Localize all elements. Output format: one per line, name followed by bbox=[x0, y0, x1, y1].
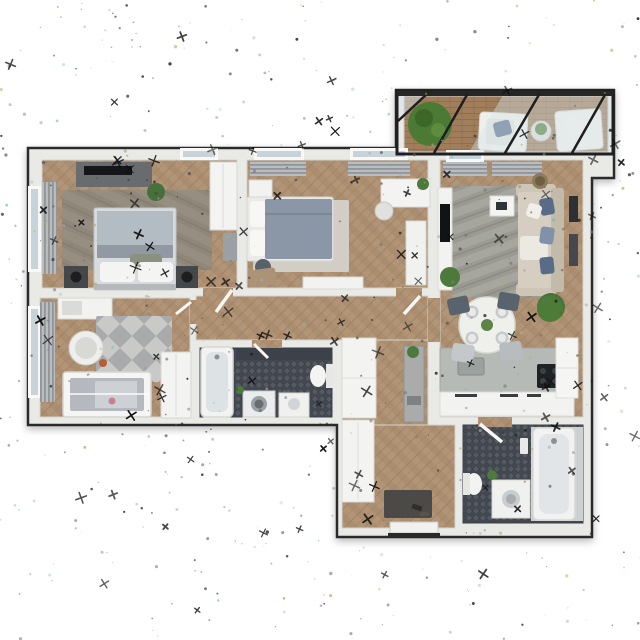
noise-dot bbox=[2, 147, 4, 149]
noise-dot bbox=[332, 487, 335, 490]
noise-dot bbox=[392, 279, 394, 281]
noise-dot bbox=[300, 515, 302, 517]
noise-dot bbox=[508, 26, 510, 28]
noise-dot bbox=[524, 197, 526, 199]
noise-dot bbox=[531, 448, 533, 450]
noise-dot bbox=[360, 375, 362, 377]
noise-dot bbox=[53, 54, 55, 56]
noise-dot bbox=[623, 551, 625, 553]
noise-dot bbox=[620, 410, 623, 413]
noise-dot bbox=[67, 167, 68, 168]
noise-dot bbox=[204, 5, 207, 8]
noise-x-mark bbox=[76, 493, 87, 504]
noise-dot bbox=[158, 383, 159, 384]
second-pillow-1 bbox=[250, 201, 265, 227]
noise-dot bbox=[16, 439, 18, 441]
noise-dot bbox=[435, 485, 437, 487]
noise-dot bbox=[58, 346, 60, 348]
noise-dot bbox=[314, 578, 316, 580]
corridor-shelf-item bbox=[407, 396, 421, 405]
floor-hallway bbox=[196, 296, 428, 340]
noise-dot bbox=[29, 573, 31, 575]
noise-dot bbox=[363, 547, 365, 549]
noise-dot bbox=[101, 39, 103, 41]
noise-x-mark bbox=[328, 439, 333, 444]
noise-dot bbox=[14, 504, 17, 507]
noise-dot bbox=[465, 388, 466, 389]
noise-dot bbox=[254, 246, 255, 247]
noise-dot bbox=[307, 561, 308, 562]
noise-dot bbox=[479, 532, 482, 535]
noise-dot bbox=[369, 131, 371, 133]
noise-dot bbox=[631, 172, 634, 175]
noise-dot bbox=[0, 519, 2, 521]
noise-dot bbox=[237, 364, 239, 366]
noise-dot bbox=[590, 380, 593, 383]
second-dresser bbox=[303, 277, 363, 289]
dining-chair-tr bbox=[497, 291, 521, 311]
noise-dot bbox=[607, 340, 610, 343]
noise-dot bbox=[392, 277, 393, 278]
noise-x-mark bbox=[316, 118, 323, 125]
noise-dot bbox=[215, 116, 218, 119]
noise-dot bbox=[165, 434, 168, 437]
noise-dot bbox=[100, 422, 102, 424]
noise-dot bbox=[489, 198, 491, 200]
noise-dot bbox=[479, 429, 482, 432]
noise-dot bbox=[382, 101, 383, 102]
noise-dot bbox=[409, 281, 410, 282]
kitchen-handle-3 bbox=[527, 394, 541, 397]
noise-dot bbox=[281, 531, 284, 534]
noise-dot bbox=[87, 373, 89, 375]
noise-x-mark bbox=[6, 60, 16, 70]
noise-dot bbox=[421, 339, 424, 342]
noise-dot bbox=[523, 409, 526, 412]
noise-dot bbox=[56, 120, 59, 123]
noise-dot bbox=[18, 509, 20, 511]
noise-dot bbox=[555, 300, 558, 303]
noise-dot bbox=[50, 184, 52, 186]
sofa-pillow-3 bbox=[539, 256, 555, 274]
noise-dot bbox=[441, 329, 444, 332]
noise-dot bbox=[19, 593, 21, 595]
noise-dot bbox=[359, 550, 360, 551]
table-centerpiece bbox=[481, 319, 493, 331]
noise-dot bbox=[44, 222, 47, 225]
noise-dot bbox=[603, 278, 605, 280]
noise-dot bbox=[257, 526, 258, 527]
noise-dot bbox=[370, 274, 371, 275]
noise-dot bbox=[356, 337, 359, 340]
noise-dot bbox=[559, 312, 561, 314]
noise-dot bbox=[173, 203, 174, 204]
noise-dot bbox=[105, 60, 106, 61]
noise-dot bbox=[205, 431, 207, 433]
noise-dot bbox=[253, 546, 255, 548]
noise-dot bbox=[142, 526, 144, 528]
noise-dot bbox=[128, 17, 130, 19]
noise-dot bbox=[223, 238, 226, 241]
noise-dot bbox=[393, 57, 394, 58]
noise-dot bbox=[346, 115, 348, 117]
noise-dot bbox=[609, 129, 612, 132]
noise-dot bbox=[149, 269, 150, 270]
noise-dot bbox=[637, 275, 640, 278]
noise-dot bbox=[604, 427, 607, 430]
noise-dot bbox=[300, 328, 302, 330]
noise-dot bbox=[62, 63, 65, 66]
noise-dot bbox=[112, 562, 114, 564]
children-changing-mat bbox=[62, 301, 82, 315]
second-duvet bbox=[265, 199, 332, 259]
noise-dot bbox=[193, 313, 194, 314]
master-curtain bbox=[42, 182, 57, 274]
noise-dot bbox=[360, 618, 362, 620]
noise-dot bbox=[473, 30, 476, 33]
noise-dot bbox=[521, 624, 523, 626]
noise-dot bbox=[240, 197, 242, 199]
noise-dot bbox=[585, 619, 587, 621]
wall-frame-1 bbox=[569, 196, 578, 222]
bath1-toilet-tank bbox=[326, 364, 333, 388]
noise-dot bbox=[552, 137, 555, 140]
noise-dot bbox=[83, 260, 85, 262]
noise-dot bbox=[288, 390, 291, 393]
noise-dot bbox=[465, 407, 467, 409]
crib-toy bbox=[109, 398, 116, 405]
noise-dot bbox=[172, 286, 173, 287]
noise-dot bbox=[228, 351, 230, 353]
noise-dot bbox=[318, 540, 319, 541]
noise-dot bbox=[145, 304, 147, 306]
noise-dot bbox=[99, 348, 102, 351]
noise-dot bbox=[194, 570, 196, 572]
noise-dot bbox=[499, 89, 501, 91]
living-tv bbox=[440, 204, 450, 242]
noise-dot bbox=[98, 482, 100, 484]
noise-dot bbox=[93, 224, 96, 227]
noise-dot bbox=[518, 185, 521, 188]
noise-dot bbox=[130, 192, 132, 194]
noise-dot bbox=[528, 322, 529, 323]
living-book bbox=[496, 202, 507, 210]
noise-dot bbox=[126, 95, 129, 98]
washer-door-inner bbox=[255, 400, 264, 409]
noise-dot bbox=[511, 270, 512, 271]
noise-dot bbox=[245, 333, 248, 336]
noise-dot bbox=[566, 620, 569, 623]
children-curtain bbox=[40, 302, 55, 402]
bath2-toilet-tank bbox=[463, 473, 470, 495]
noise-dot bbox=[544, 614, 545, 615]
noise-dot bbox=[83, 25, 86, 28]
noise-dot bbox=[235, 541, 236, 542]
noise-dot bbox=[593, 0, 595, 2]
noise-dot bbox=[15, 278, 17, 280]
noise-dot bbox=[309, 465, 311, 467]
noise-dot bbox=[493, 319, 495, 321]
noise-dot bbox=[175, 424, 177, 426]
master-lamp-right bbox=[182, 272, 193, 283]
noise-dot bbox=[380, 243, 383, 246]
noise-dot bbox=[418, 187, 420, 189]
noise-dot bbox=[205, 41, 207, 43]
noise-dot bbox=[270, 563, 272, 565]
burner-3 bbox=[540, 378, 546, 384]
noise-dot bbox=[208, 451, 210, 453]
noise-dot bbox=[437, 469, 439, 471]
noise-dot bbox=[94, 282, 97, 285]
noise-x-mark bbox=[593, 516, 599, 522]
noise-dot bbox=[9, 416, 11, 418]
noise-dot bbox=[352, 55, 353, 56]
noise-dot bbox=[151, 512, 153, 514]
noise-dot bbox=[576, 354, 579, 357]
noise-dot bbox=[459, 247, 462, 250]
noise-dot bbox=[64, 451, 66, 453]
noise-dot bbox=[543, 153, 546, 156]
noise-dot bbox=[4, 153, 7, 156]
bath1-toilet bbox=[310, 365, 326, 387]
bath1-tub-inner bbox=[206, 352, 228, 412]
noise-dot bbox=[174, 45, 177, 48]
noise-dot bbox=[187, 408, 190, 411]
noise-dot bbox=[548, 485, 551, 488]
noise-dot bbox=[303, 323, 306, 326]
noise-dot bbox=[148, 110, 150, 112]
noise-dot bbox=[517, 373, 520, 376]
noise-dot bbox=[228, 144, 229, 145]
noise-dot bbox=[111, 60, 112, 61]
noise-dot bbox=[371, 319, 373, 321]
noise-dot bbox=[75, 527, 77, 529]
noise-dot bbox=[167, 474, 169, 476]
noise-dot bbox=[206, 537, 209, 540]
noise-dot bbox=[428, 435, 429, 436]
noise-dot bbox=[393, 615, 394, 616]
noise-dot bbox=[399, 24, 400, 25]
living-curtain-1 bbox=[443, 162, 487, 176]
noise-dot bbox=[265, 543, 266, 544]
noise-dot bbox=[380, 151, 383, 154]
noise-dot bbox=[53, 563, 54, 564]
noise-dot bbox=[126, 155, 128, 157]
noise-dot bbox=[50, 385, 53, 388]
noise-dot bbox=[241, 543, 242, 544]
noise-dot bbox=[502, 431, 504, 433]
noise-dot bbox=[636, 84, 638, 86]
noise-dot bbox=[352, 116, 354, 118]
second-pillow-2 bbox=[250, 230, 265, 256]
noise-dot bbox=[154, 192, 157, 195]
noise-dot bbox=[567, 607, 569, 609]
noise-dot bbox=[201, 213, 203, 215]
noise-dot bbox=[59, 293, 62, 296]
noise-dot bbox=[294, 178, 297, 181]
noise-dot bbox=[186, 378, 188, 380]
noise-dot bbox=[48, 574, 51, 577]
noise-dot bbox=[272, 125, 273, 126]
noise-dot bbox=[230, 260, 232, 262]
noise-dot bbox=[110, 116, 111, 117]
noise-dot bbox=[591, 419, 593, 421]
noise-dot bbox=[427, 266, 429, 268]
noise-dot bbox=[0, 88, 3, 91]
noise-dot bbox=[523, 269, 525, 271]
noise-dot bbox=[263, 71, 266, 74]
noise-dot bbox=[253, 169, 256, 172]
noise-x-mark bbox=[326, 116, 332, 122]
noise-dot bbox=[81, 531, 82, 532]
noise-dot bbox=[331, 515, 333, 517]
noise-dot bbox=[300, 3, 303, 6]
noise-dot bbox=[85, 329, 86, 330]
noise-dot bbox=[75, 74, 77, 76]
noise-dot bbox=[567, 352, 568, 353]
second-curtain-1 bbox=[250, 161, 306, 176]
noise-dot bbox=[483, 314, 486, 317]
noise-dot bbox=[286, 167, 288, 169]
noise-dot bbox=[0, 417, 2, 419]
noise-dot bbox=[108, 9, 110, 11]
noise-dot bbox=[74, 519, 77, 522]
noise-dot bbox=[62, 224, 65, 227]
noise-dot bbox=[378, 406, 379, 407]
noise-dot bbox=[209, 463, 211, 465]
noise-dot bbox=[250, 353, 253, 356]
noise-dot bbox=[610, 49, 613, 52]
noise-dot bbox=[323, 603, 325, 605]
noise-dot bbox=[101, 551, 104, 554]
noise-dot bbox=[612, 194, 614, 196]
noise-dot bbox=[505, 70, 508, 73]
entrance-door bbox=[390, 522, 438, 533]
noise-dot bbox=[184, 335, 185, 336]
balcony-big-plant-dark bbox=[415, 109, 433, 127]
noise-dot bbox=[578, 219, 581, 222]
noise-dot bbox=[387, 113, 390, 116]
noise-dot bbox=[521, 144, 523, 146]
noise-dot bbox=[262, 449, 264, 451]
noise-dot bbox=[33, 500, 36, 503]
noise-dot bbox=[177, 196, 178, 197]
noise-dot bbox=[450, 156, 453, 159]
noise-dot bbox=[502, 180, 504, 182]
noise-dot bbox=[601, 290, 603, 292]
noise-dot bbox=[474, 199, 476, 201]
noise-dot bbox=[57, 6, 59, 8]
floor-plan-svg bbox=[0, 0, 640, 640]
noise-dot bbox=[136, 33, 137, 34]
noise-dot bbox=[323, 594, 325, 596]
noise-dot bbox=[181, 423, 184, 426]
noise-dot bbox=[112, 61, 114, 63]
noise-dot bbox=[553, 134, 556, 137]
noise-dot bbox=[181, 476, 183, 478]
noise-dot bbox=[501, 245, 502, 246]
noise-dot bbox=[359, 489, 362, 492]
burner-1 bbox=[540, 368, 546, 374]
noise-dot bbox=[284, 396, 287, 399]
noise-dot bbox=[127, 179, 129, 181]
noise-dot bbox=[467, 589, 468, 590]
noise-dot bbox=[320, 604, 323, 607]
noise-dot bbox=[339, 221, 341, 223]
noise-dot bbox=[369, 419, 372, 422]
noise-dot bbox=[96, 177, 98, 179]
noise-dot bbox=[47, 349, 48, 350]
noise-dot bbox=[8, 444, 11, 447]
noise-dot bbox=[114, 16, 116, 18]
noise-dot bbox=[171, 347, 174, 350]
noise-dot bbox=[500, 391, 502, 393]
noise-x-mark bbox=[630, 431, 639, 440]
noise-dot bbox=[204, 587, 207, 590]
wall-frame-2 bbox=[569, 234, 578, 266]
dining-chair-br bbox=[499, 341, 523, 362]
noise-x-mark bbox=[296, 526, 302, 532]
noise-x-mark bbox=[111, 99, 117, 105]
noise-dot bbox=[524, 481, 526, 483]
bath1-faucet bbox=[215, 355, 220, 360]
noise-dot bbox=[473, 532, 475, 534]
noise-dot bbox=[413, 153, 416, 156]
noise-dot bbox=[351, 575, 352, 576]
noise-dot bbox=[148, 410, 149, 411]
noise-dot bbox=[426, 577, 428, 579]
noise-dot bbox=[30, 180, 33, 183]
noise-dot bbox=[502, 285, 503, 286]
noise-x-mark bbox=[331, 127, 339, 135]
noise-dot bbox=[228, 390, 230, 392]
noise-dot bbox=[459, 447, 461, 449]
noise-dot bbox=[308, 246, 309, 247]
noise-dot bbox=[526, 552, 527, 553]
noise-dot bbox=[111, 47, 113, 49]
noise-dot bbox=[213, 402, 215, 404]
noise-dot bbox=[385, 402, 387, 404]
bath2-plant bbox=[487, 470, 497, 480]
noise-dot bbox=[350, 432, 351, 433]
noise-dot bbox=[402, 286, 404, 288]
noise-dot bbox=[14, 225, 16, 227]
noise-dot bbox=[351, 413, 352, 414]
noise-dot bbox=[75, 237, 76, 238]
kitchen-handle-2 bbox=[500, 394, 518, 397]
noise-dot bbox=[81, 3, 82, 4]
sofa-pillow-2 bbox=[539, 226, 555, 245]
noise-dot bbox=[435, 38, 438, 41]
master-pillow-left bbox=[100, 262, 135, 282]
bath2-sink-inner bbox=[506, 494, 516, 504]
noise-dot bbox=[283, 390, 286, 393]
noise-dot bbox=[567, 246, 570, 249]
bath2-towel bbox=[520, 438, 528, 454]
noise-dot bbox=[1, 213, 4, 216]
noise-dot bbox=[331, 423, 332, 424]
noise-dot bbox=[329, 572, 332, 575]
second-desk-chair bbox=[375, 202, 393, 220]
noise-dot bbox=[60, 16, 62, 18]
noise-dot bbox=[585, 303, 588, 306]
noise-dot bbox=[316, 70, 317, 71]
noise-dot bbox=[22, 270, 25, 273]
noise-dot bbox=[235, 49, 238, 52]
noise-dot bbox=[245, 419, 247, 421]
noise-dot bbox=[20, 50, 22, 52]
noise-dot bbox=[266, 530, 269, 533]
